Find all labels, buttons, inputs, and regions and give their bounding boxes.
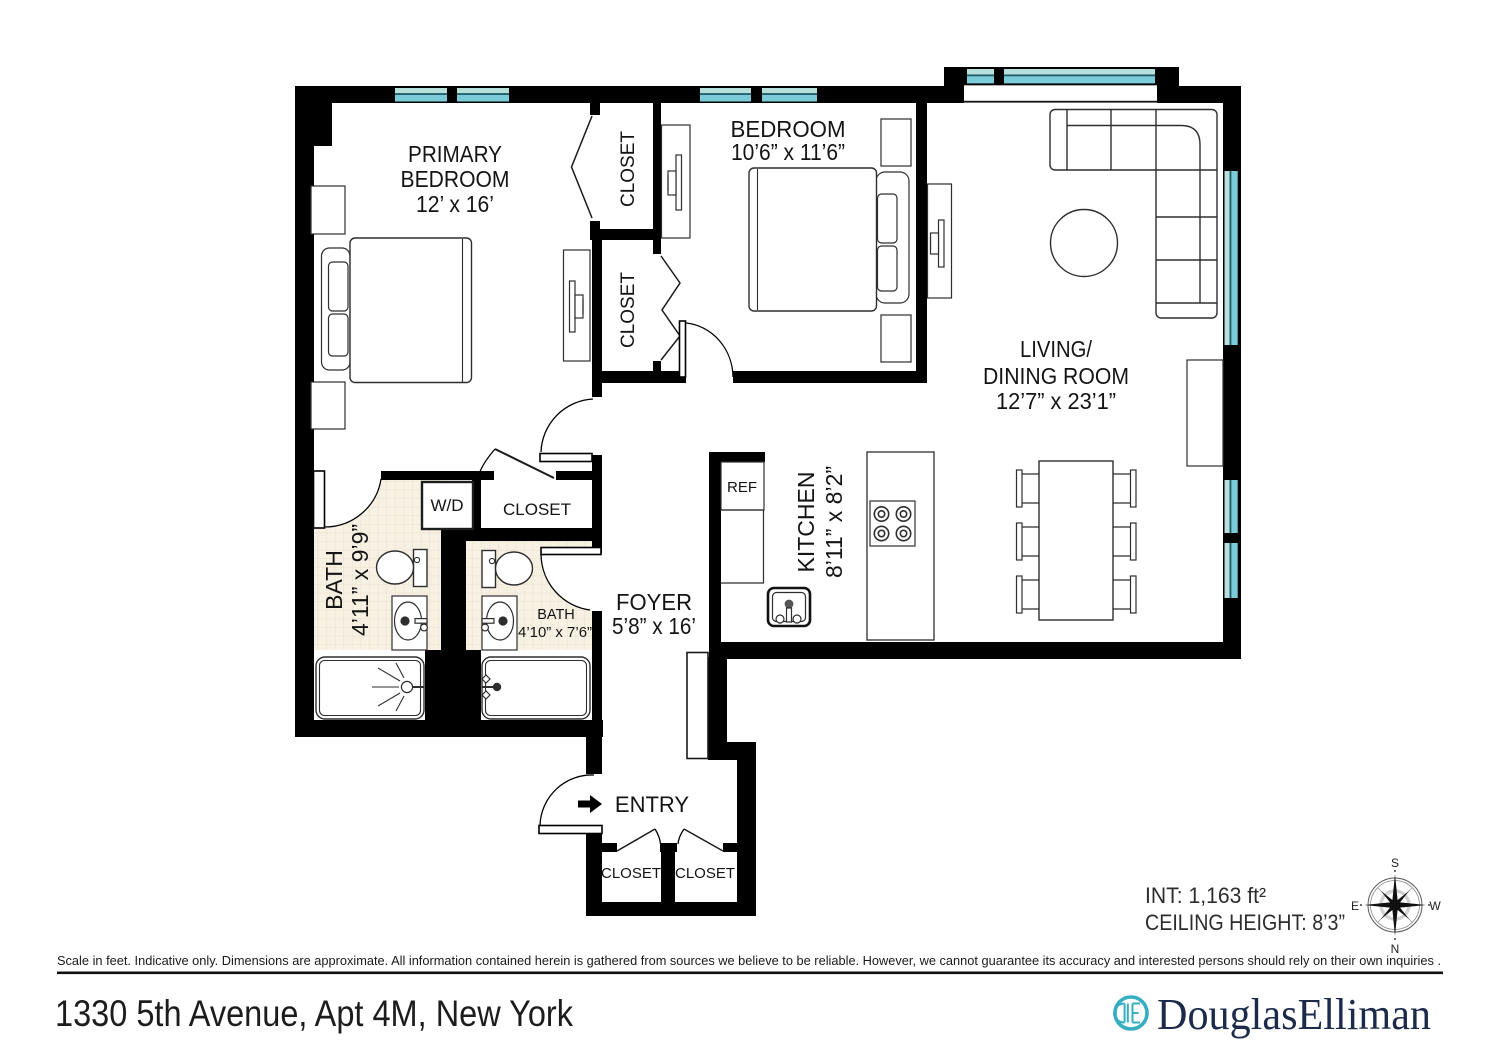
- svg-text:CLOSET: CLOSET: [503, 500, 571, 519]
- svg-text:5’8” x 16’: 5’8” x 16’: [612, 613, 696, 639]
- svg-text:ENTRY: ENTRY: [615, 792, 689, 817]
- svg-text:CLOSET: CLOSET: [675, 865, 735, 882]
- svg-text:FOYER: FOYER: [616, 589, 692, 615]
- svg-text:BATH: BATH: [537, 607, 575, 623]
- svg-text:8’11” x 8’2”: 8’11” x 8’2”: [821, 466, 847, 578]
- svg-text:KITCHEN: KITCHEN: [793, 472, 819, 573]
- svg-text:W/D: W/D: [430, 496, 463, 515]
- svg-text:BEDROOM: BEDROOM: [401, 166, 510, 192]
- svg-text:4’10” x 7’6”: 4’10” x 7’6”: [518, 625, 592, 641]
- svg-text:CLOSET: CLOSET: [601, 865, 661, 882]
- svg-text:BATH: BATH: [321, 550, 347, 610]
- svg-text:CEILING HEIGHT: 8’3”: CEILING HEIGHT: 8’3”: [1145, 910, 1345, 935]
- svg-text:10’6” x 11’6”: 10’6” x 11’6”: [731, 139, 845, 165]
- svg-text:S: S: [1391, 856, 1399, 870]
- svg-text:CLOSET: CLOSET: [618, 131, 639, 207]
- svg-text:CLOSET: CLOSET: [618, 272, 639, 348]
- svg-text:REF: REF: [727, 479, 757, 496]
- svg-text:12’ x 16’: 12’ x 16’: [416, 191, 494, 217]
- svg-text:DouglasElliman: DouglasElliman: [1157, 990, 1431, 1039]
- svg-text:LIVING/: LIVING/: [1020, 336, 1093, 362]
- svg-text:E: E: [1351, 899, 1359, 913]
- svg-text:Scale in feet. Indicative only: Scale in feet. Indicative only. Dimensio…: [57, 953, 1441, 968]
- svg-text:INT: 1,163 ft²: INT: 1,163 ft²: [1145, 883, 1266, 908]
- svg-text:4’11” x 9’9”: 4’11” x 9’9”: [347, 524, 373, 636]
- svg-text:1330 5th Avenue, Apt 4M, New Y: 1330 5th Avenue, Apt 4M, New York: [55, 993, 573, 1034]
- svg-text:12’7” x 23’1”: 12’7” x 23’1”: [996, 388, 1116, 414]
- svg-text:PRIMARY: PRIMARY: [408, 141, 502, 167]
- svg-text:W: W: [1429, 899, 1441, 913]
- svg-text:DINING ROOM: DINING ROOM: [983, 363, 1129, 389]
